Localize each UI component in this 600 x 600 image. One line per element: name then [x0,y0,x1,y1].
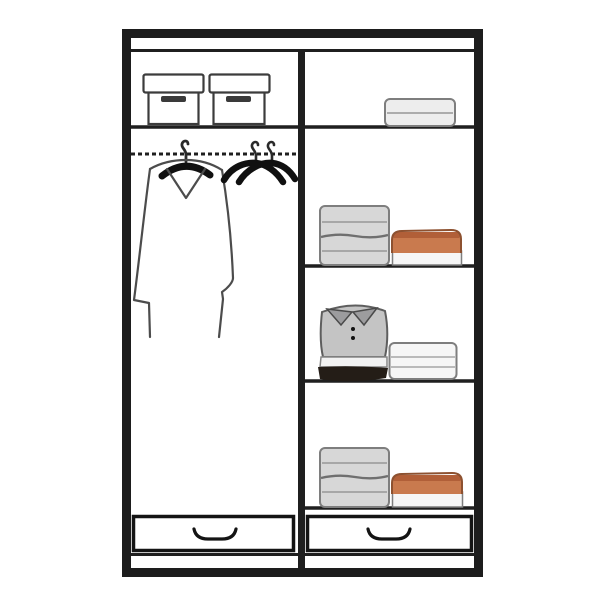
drawer-front [134,517,294,551]
wardrobe-diagram [0,0,600,600]
folded-stack [390,343,457,379]
coat-v-neck [167,169,205,198]
coat-left-edge [134,169,150,337]
white-base-layer [393,492,463,507]
folded-stack-gray-shelf4 [320,448,389,507]
coat-right-edge [219,170,233,337]
drawer-front [308,517,472,551]
polo-button [351,336,355,340]
folded-polo-shirt-stack [318,305,388,381]
left-drawer [134,517,294,551]
right-column [305,99,474,551]
storage-box-2-icon [210,75,270,125]
dark-layer [318,366,388,381]
white-layer [320,357,387,367]
box-body [214,90,265,124]
box-handle-slot [226,96,251,102]
polo-button [351,327,355,331]
long-coat-on-hanger [134,141,233,337]
orange-layer [393,238,460,253]
box-lid [144,75,204,93]
empty-hangers [224,142,295,182]
orange-layer [393,481,461,494]
right-drawer [308,517,472,551]
white-base-layer [393,251,462,265]
folded-stack-orange-shelf2 [392,230,462,265]
storage-box-1-icon [144,75,204,125]
folded-stack-white-top [385,99,455,126]
box-handle-slot [161,96,186,102]
left-column [131,75,298,551]
wardrobe-svg [0,0,600,600]
folded-stack-gray-shelf2 [320,206,389,265]
box-body [149,90,199,124]
box-lid [210,75,270,93]
folded-stack-orange-shelf4 [392,473,463,507]
coat-hanger-hook-icon [182,141,188,162]
folded-stack-white-shelf3 [390,343,457,379]
